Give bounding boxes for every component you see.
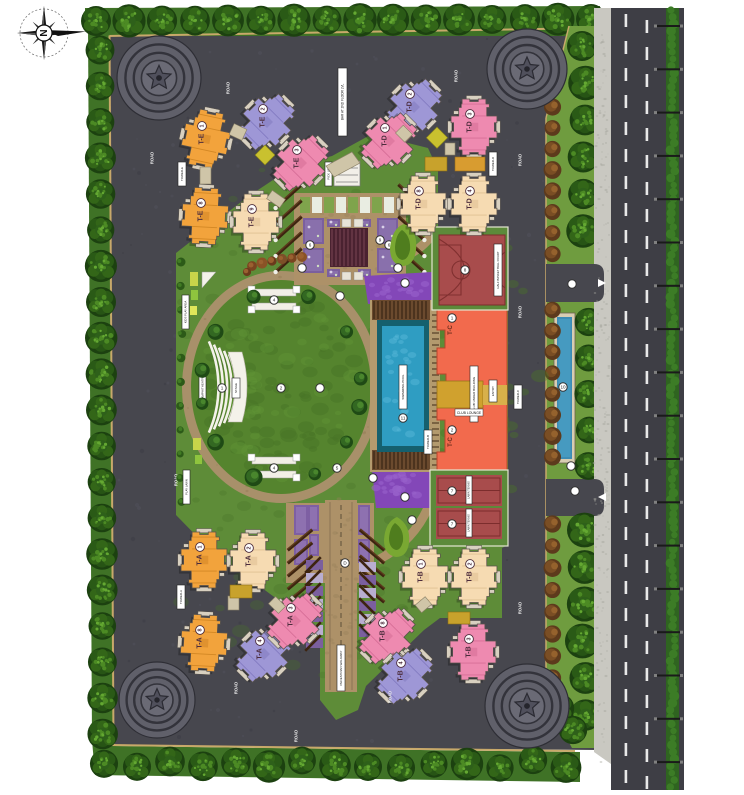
svg-text:T-C: T-C	[448, 325, 454, 335]
svg-text:4: 4	[398, 662, 404, 665]
svg-text:2: 2	[467, 563, 473, 566]
svg-text:SWIMMING POOL: SWIMMING POOL	[401, 374, 405, 399]
svg-text:ROAD: ROAD	[294, 730, 299, 742]
svg-text:STAGE: STAGE	[234, 383, 238, 393]
svg-text:T-D: T-D	[467, 198, 474, 209]
svg-text:T-C: T-C	[448, 437, 454, 447]
svg-text:2: 2	[407, 93, 413, 96]
svg-text:8: 8	[416, 190, 422, 193]
svg-text:2: 2	[246, 547, 252, 550]
svg-text:11: 11	[401, 416, 406, 421]
svg-text:HALF BASKET BALL COURT: HALF BASKET BALL COURT	[496, 251, 500, 288]
svg-text:8: 8	[380, 622, 386, 625]
svg-text:4: 4	[257, 640, 263, 643]
svg-text:T-A: T-A	[197, 637, 204, 648]
svg-text:3: 3	[294, 149, 300, 152]
svg-text:5: 5	[336, 466, 339, 471]
svg-text:PLAY LAWN: PLAY LAWN	[185, 479, 189, 495]
svg-text:ENTRY: ENTRY	[491, 386, 495, 396]
svg-text:LAWN TENNIS: LAWN TENNIS	[467, 514, 471, 532]
svg-text:T-D: T-D	[382, 135, 389, 146]
svg-text:8: 8	[198, 202, 204, 205]
svg-text:2: 2	[280, 386, 283, 391]
svg-text:T-D: T-D	[407, 101, 414, 112]
svg-text:T-E: T-E	[199, 133, 206, 144]
svg-text:T-D: T-D	[467, 121, 474, 132]
svg-text:T-A: T-A	[257, 648, 264, 659]
svg-text:T-B: T-B	[398, 670, 405, 681]
svg-text:10: 10	[560, 385, 566, 390]
svg-text:T-B: T-B	[380, 630, 387, 641]
svg-text:TOWER-A: TOWER-A	[179, 590, 183, 604]
svg-text:ROAD: ROAD	[388, 691, 393, 703]
svg-text:T-E: T-E	[294, 157, 301, 168]
svg-text:TOWER-B: TOWER-B	[426, 435, 430, 449]
svg-text:4: 4	[467, 190, 473, 193]
svg-text:T-B: T-B	[466, 646, 473, 657]
svg-text:T-E: T-E	[260, 116, 267, 127]
svg-text:N: N	[39, 29, 50, 36]
svg-text:T-B: T-B	[467, 571, 474, 582]
svg-text:3: 3	[466, 638, 472, 641]
svg-text:1: 1	[418, 563, 424, 566]
svg-text:ROAD: ROAD	[234, 682, 239, 694]
svg-text:T-A: T-A	[288, 615, 295, 626]
svg-text:4: 4	[273, 466, 276, 471]
svg-text:8: 8	[197, 629, 203, 632]
svg-text:ROAD: ROAD	[150, 152, 155, 164]
svg-text:1: 1	[221, 386, 224, 391]
svg-text:9: 9	[249, 208, 255, 211]
svg-text:PEDESTRIAN WALKWAY: PEDESTRIAN WALKWAY	[339, 651, 343, 686]
svg-text:ROAD: ROAD	[226, 82, 231, 94]
svg-text:ROAD: ROAD	[518, 306, 523, 318]
svg-text:3: 3	[288, 607, 294, 610]
svg-text:T-B: T-B	[418, 571, 425, 582]
svg-text:T-A: T-A	[197, 554, 204, 565]
svg-text:TOWER-C: TOWER-C	[516, 389, 520, 404]
svg-text:T-D: T-D	[416, 198, 423, 209]
svg-text:1: 1	[451, 316, 454, 321]
svg-text:3: 3	[467, 113, 473, 116]
svg-text:TOWER-D: TOWER-D	[491, 156, 495, 171]
svg-text:ROAD: ROAD	[518, 602, 523, 614]
svg-text:1: 1	[382, 127, 388, 130]
svg-text:7: 7	[451, 522, 454, 527]
svg-text:8: 8	[464, 268, 467, 273]
svg-text:LAWN TENNIS: LAWN TENNIS	[467, 481, 471, 499]
svg-text:T-A: T-A	[246, 555, 253, 566]
svg-text:6: 6	[309, 243, 312, 248]
svg-text:2: 2	[260, 108, 266, 111]
svg-text:9: 9	[379, 238, 382, 243]
svg-text:1: 1	[197, 546, 203, 549]
svg-text:7: 7	[451, 489, 454, 494]
svg-text:KIDS PLAY AREA: KIDS PLAY AREA	[184, 301, 188, 324]
svg-text:T-E: T-E	[198, 210, 205, 221]
svg-text:T-E: T-E	[249, 216, 256, 227]
svg-text:1: 1	[199, 125, 205, 128]
svg-text:AMPHITHEATRE: AMPHITHEATRE	[201, 375, 205, 398]
svg-text:ROAD: ROAD	[454, 70, 459, 82]
svg-text:2: 2	[451, 428, 454, 433]
svg-text:TOWER-E: TOWER-E	[180, 167, 184, 181]
svg-text:CLUB LOUNGE: CLUB LOUNGE	[457, 411, 482, 415]
svg-text:4: 4	[273, 298, 276, 303]
svg-text:BAR AT 2ND FLOOR LVL: BAR AT 2ND FLOOR LVL	[341, 84, 345, 121]
svg-text:CLUB UNDER BUILDING: CLUB UNDER BUILDING	[472, 376, 476, 411]
svg-text:ROAD: ROAD	[518, 154, 523, 166]
